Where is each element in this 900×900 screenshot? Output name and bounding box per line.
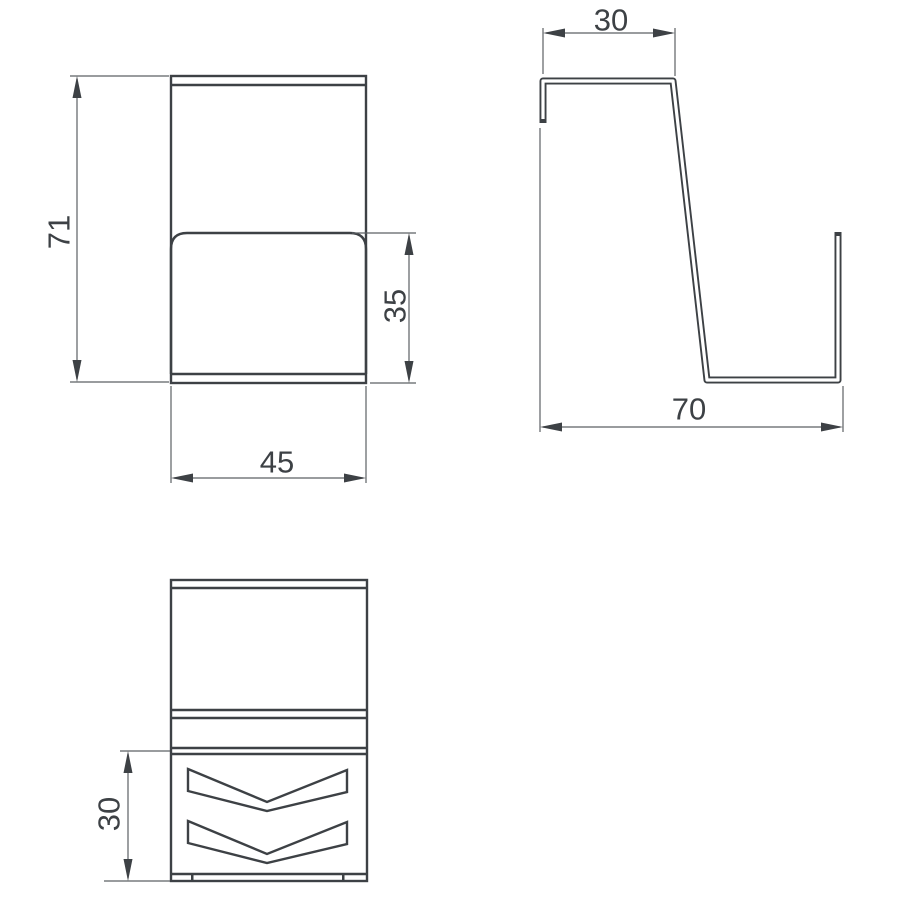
dim-30-side-arrow-left-icon xyxy=(543,29,565,38)
dim-45-arrow-left-icon xyxy=(171,474,193,483)
technical-drawing-canvas: 71 35 45 30 70 30 xyxy=(0,0,900,900)
side-view xyxy=(543,81,838,380)
dim-35-arrow-down-icon xyxy=(405,361,414,383)
dim-70-arrow-left-icon xyxy=(540,423,562,432)
dim-label-side-depth: 70 xyxy=(672,394,706,425)
front-view-outline xyxy=(171,76,366,383)
dim-30-bottom-arrow-down-icon xyxy=(124,859,133,881)
dim-30-bottom-arrow-up-icon xyxy=(124,751,133,773)
dim-label-side-top-width: 30 xyxy=(594,5,628,36)
front-view-hook-face xyxy=(171,233,366,374)
dim-label-front-height: 71 xyxy=(44,215,75,249)
dim-71-arrow-down-icon xyxy=(73,360,82,382)
chevron-cutout-bottom xyxy=(188,821,347,863)
dim-label-section-height: 30 xyxy=(94,797,125,831)
dim-70-arrow-right-icon xyxy=(821,423,843,432)
dim-30-side-arrow-right-icon xyxy=(653,29,675,38)
front-view xyxy=(171,76,366,383)
dim-label-front-width: 45 xyxy=(260,447,294,478)
chevron-cutout-top xyxy=(188,769,347,811)
bottom-edge-tick-left xyxy=(191,875,194,881)
dim-45-arrow-right-icon xyxy=(344,474,366,483)
bottom-view xyxy=(171,580,367,881)
side-profile-core xyxy=(543,81,838,380)
bottom-edge-tick-right xyxy=(342,875,345,881)
bottom-view-outline xyxy=(171,580,367,881)
dim-35-arrow-up-icon xyxy=(405,233,414,255)
dim-label-inner-height: 35 xyxy=(380,289,411,323)
dim-71-arrow-up-icon xyxy=(73,76,82,98)
drawing-svg xyxy=(0,0,900,900)
